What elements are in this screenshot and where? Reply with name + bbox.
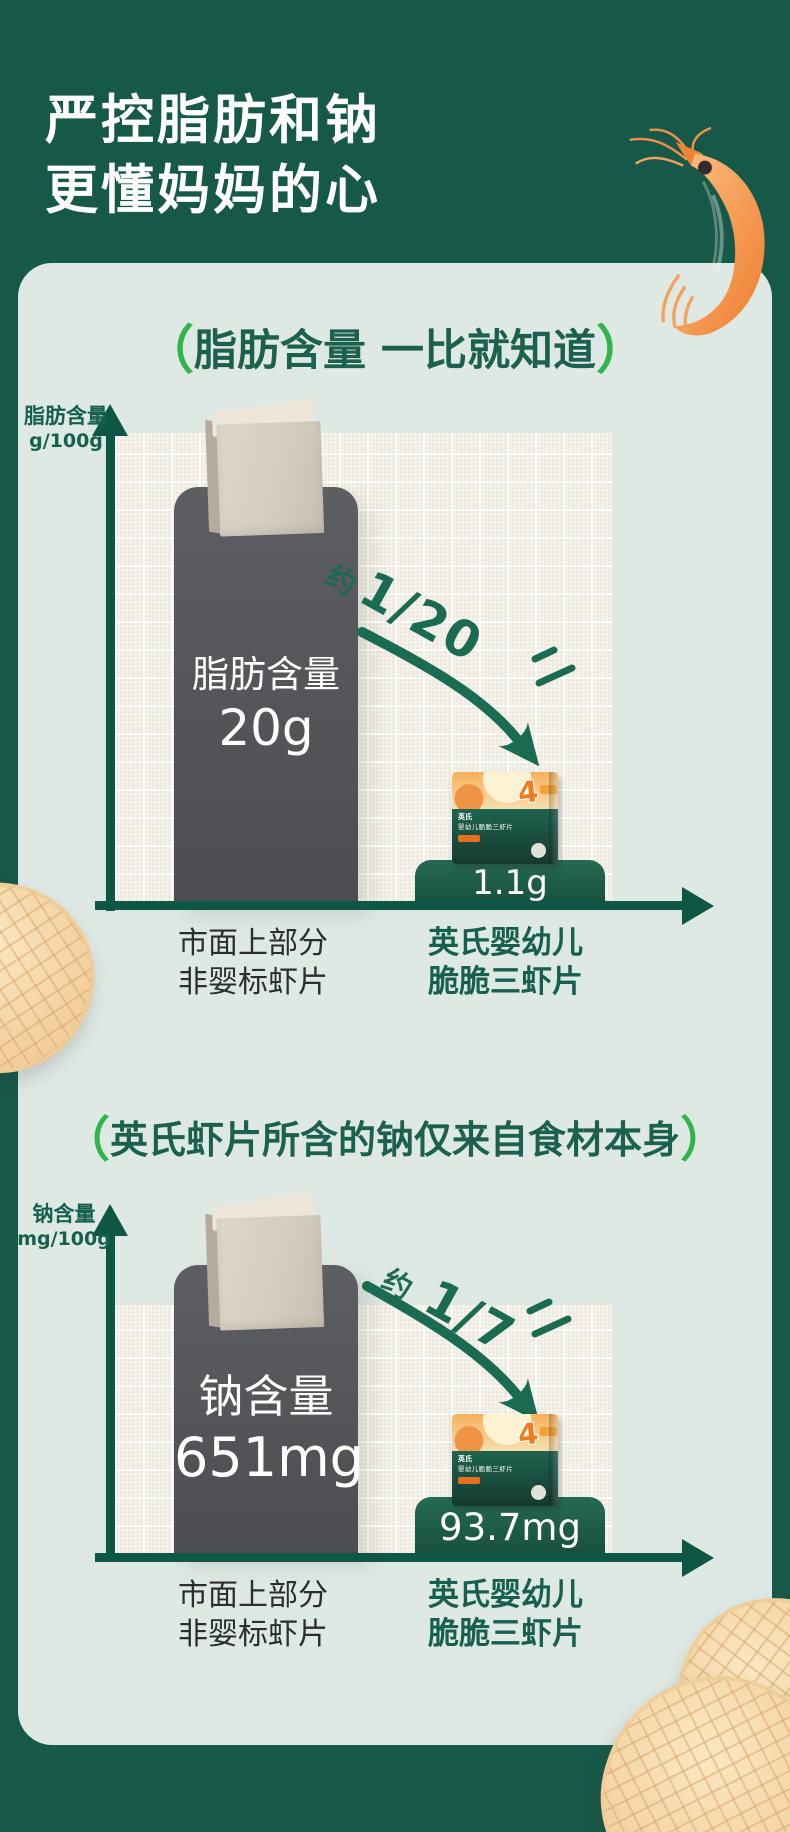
package-logo-circle	[531, 843, 546, 858]
fat-category-generic: 市面上部分 非婴标虾片	[128, 924, 378, 1002]
fat-title-text: 脂肪含量 一比就知道	[194, 326, 596, 376]
package-side-gusset	[549, 1414, 558, 1506]
page-title: 严控脂肪和钠 更懂妈妈的心	[45, 86, 381, 226]
promo-page: 严控脂肪和钠 更懂妈妈的心 （脂肪含量 一比就知道） 脂肪含量 g/100g	[0, 0, 790, 1832]
package-logo-circle	[531, 1485, 546, 1500]
package-brand: 英氏	[458, 813, 552, 821]
page-title-line1: 严控脂肪和钠	[45, 86, 381, 156]
package-age-badge: 4	[516, 1416, 540, 1452]
page-title-line2: 更懂妈妈的心	[45, 156, 381, 226]
fat-y-axis-label: 脂肪含量 g/100g	[16, 404, 116, 453]
sodium-category-generic: 市面上部分 非婴标虾片	[128, 1576, 378, 1654]
package-brand: 英氏	[458, 1455, 552, 1463]
package-flavor-tag	[458, 835, 480, 842]
package-flavor-tag	[458, 1477, 480, 1484]
sodium-title-text: 英氏虾片所含的钠仅来自食材本身	[110, 1118, 680, 1162]
package-product-name: 婴幼儿脆脆三虾片	[458, 1465, 552, 1473]
product-package: 4 英氏 婴幼儿脆脆三虾片	[452, 1414, 558, 1506]
shrimp-photo-icon	[612, 126, 790, 344]
sodium-category-yingshi: 英氏婴幼儿 脆脆三虾片	[383, 1576, 628, 1654]
package-side-gusset	[549, 772, 558, 864]
title-open-bracket: （	[62, 1112, 110, 1168]
sodium-section-title: （英氏虾片所含的钠仅来自食材本身）	[18, 1100, 772, 1170]
sodium-y-axis-label-unit: mg/100g	[17, 1228, 111, 1250]
sodium-y-axis-label: 钠含量 mg/100g	[12, 1202, 116, 1251]
package-age-badge: 4	[516, 774, 540, 810]
package-product-name: 婴幼儿脆脆三虾片	[458, 823, 552, 831]
sodium-y-axis-label-line1: 钠含量	[33, 1202, 96, 1226]
fat-y-axis-label-line1: 脂肪含量	[24, 404, 108, 428]
fat-chart-axes	[80, 396, 728, 930]
fat-category-yingshi: 英氏婴幼儿 脆脆三虾片	[383, 924, 628, 1002]
product-package: 4 英氏 婴幼儿脆脆三虾片	[452, 772, 558, 864]
title-close-bracket: ）	[680, 1112, 728, 1168]
title-open-bracket: （	[142, 321, 194, 381]
fat-y-axis-label-unit: g/100g	[29, 430, 103, 452]
